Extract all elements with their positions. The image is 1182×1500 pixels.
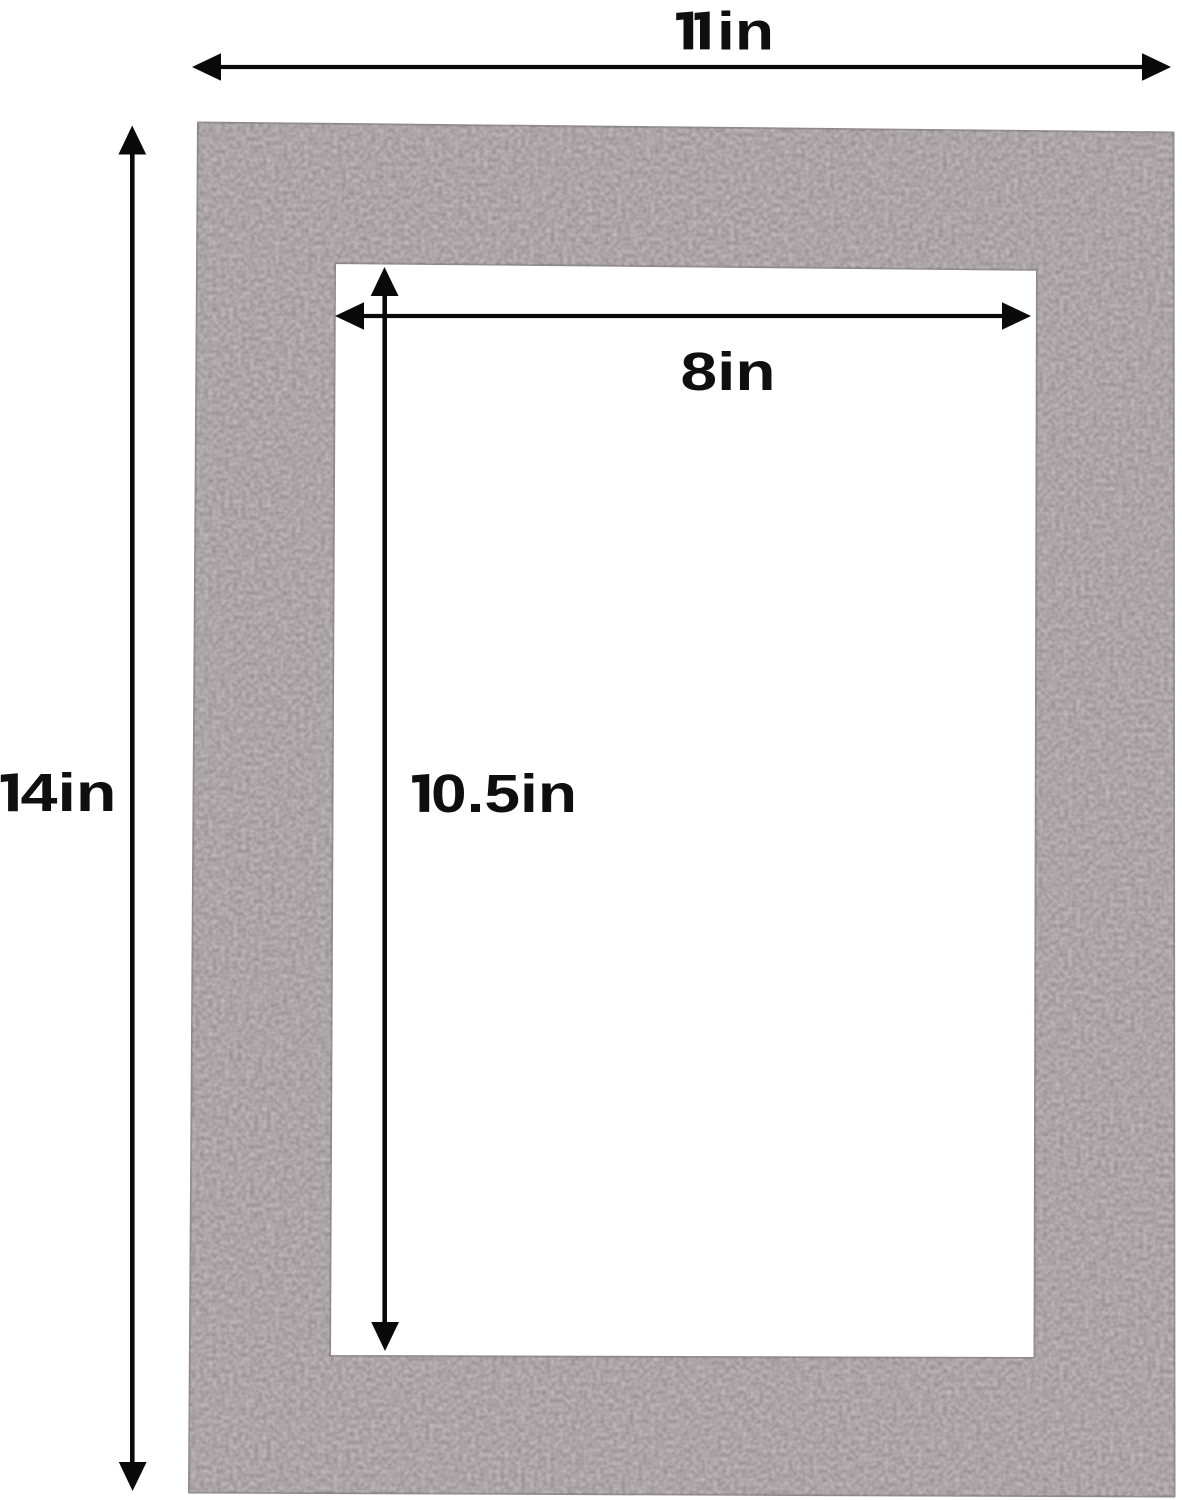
- svg-text:in: in: [717, 1, 774, 61]
- svg-text:0.5in: 0.5in: [431, 764, 577, 824]
- svg-text:4in: 4in: [21, 763, 117, 823]
- svg-text:8in: 8in: [681, 342, 776, 402]
